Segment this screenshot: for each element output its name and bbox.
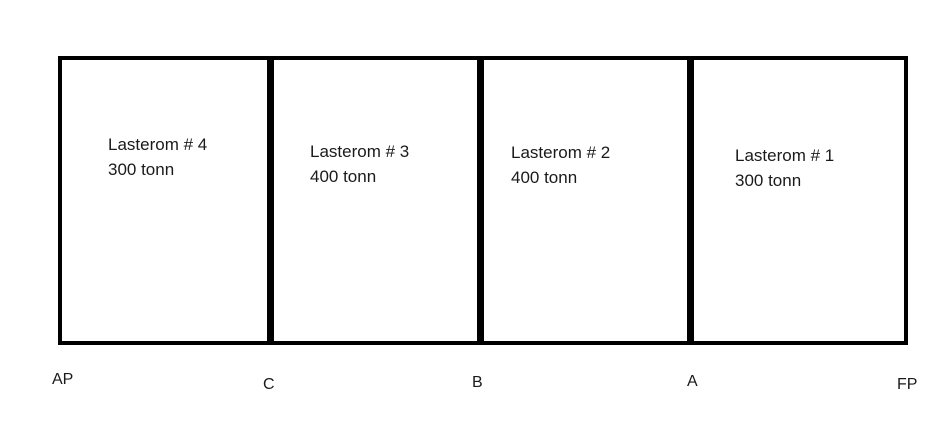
compartment-3-load: 400 tonn <box>310 164 409 189</box>
marker-aft-perpendicular: AP <box>52 371 73 389</box>
compartment-2: Lasterom # 2 400 tonn <box>511 140 610 190</box>
compartment-1: Lasterom # 1 300 tonn <box>735 143 834 193</box>
compartment-1-name: Lasterom # 1 <box>735 143 834 168</box>
marker-b: B <box>472 374 483 392</box>
compartment-3-name: Lasterom # 3 <box>310 139 409 164</box>
compartment-1-load: 300 tonn <box>735 168 834 193</box>
compartment-4-load: 300 tonn <box>108 157 207 182</box>
compartment-4-name: Lasterom # 4 <box>108 132 207 157</box>
bulkhead-divider-b <box>477 60 484 341</box>
bulkhead-divider-a <box>687 60 694 341</box>
compartment-2-name: Lasterom # 2 <box>511 140 610 165</box>
compartment-4: Lasterom # 4 300 tonn <box>108 132 207 182</box>
ship-loading-diagram: Lasterom # 4 300 tonn Lasterom # 3 400 t… <box>0 0 944 428</box>
marker-c: C <box>263 376 275 394</box>
compartment-3: Lasterom # 3 400 tonn <box>310 139 409 189</box>
hull-outline: Lasterom # 4 300 tonn Lasterom # 3 400 t… <box>58 56 908 345</box>
marker-fore-perpendicular: FP <box>897 376 917 394</box>
marker-a: A <box>687 373 698 391</box>
bulkhead-divider-c <box>267 60 274 341</box>
compartment-2-load: 400 tonn <box>511 165 610 190</box>
